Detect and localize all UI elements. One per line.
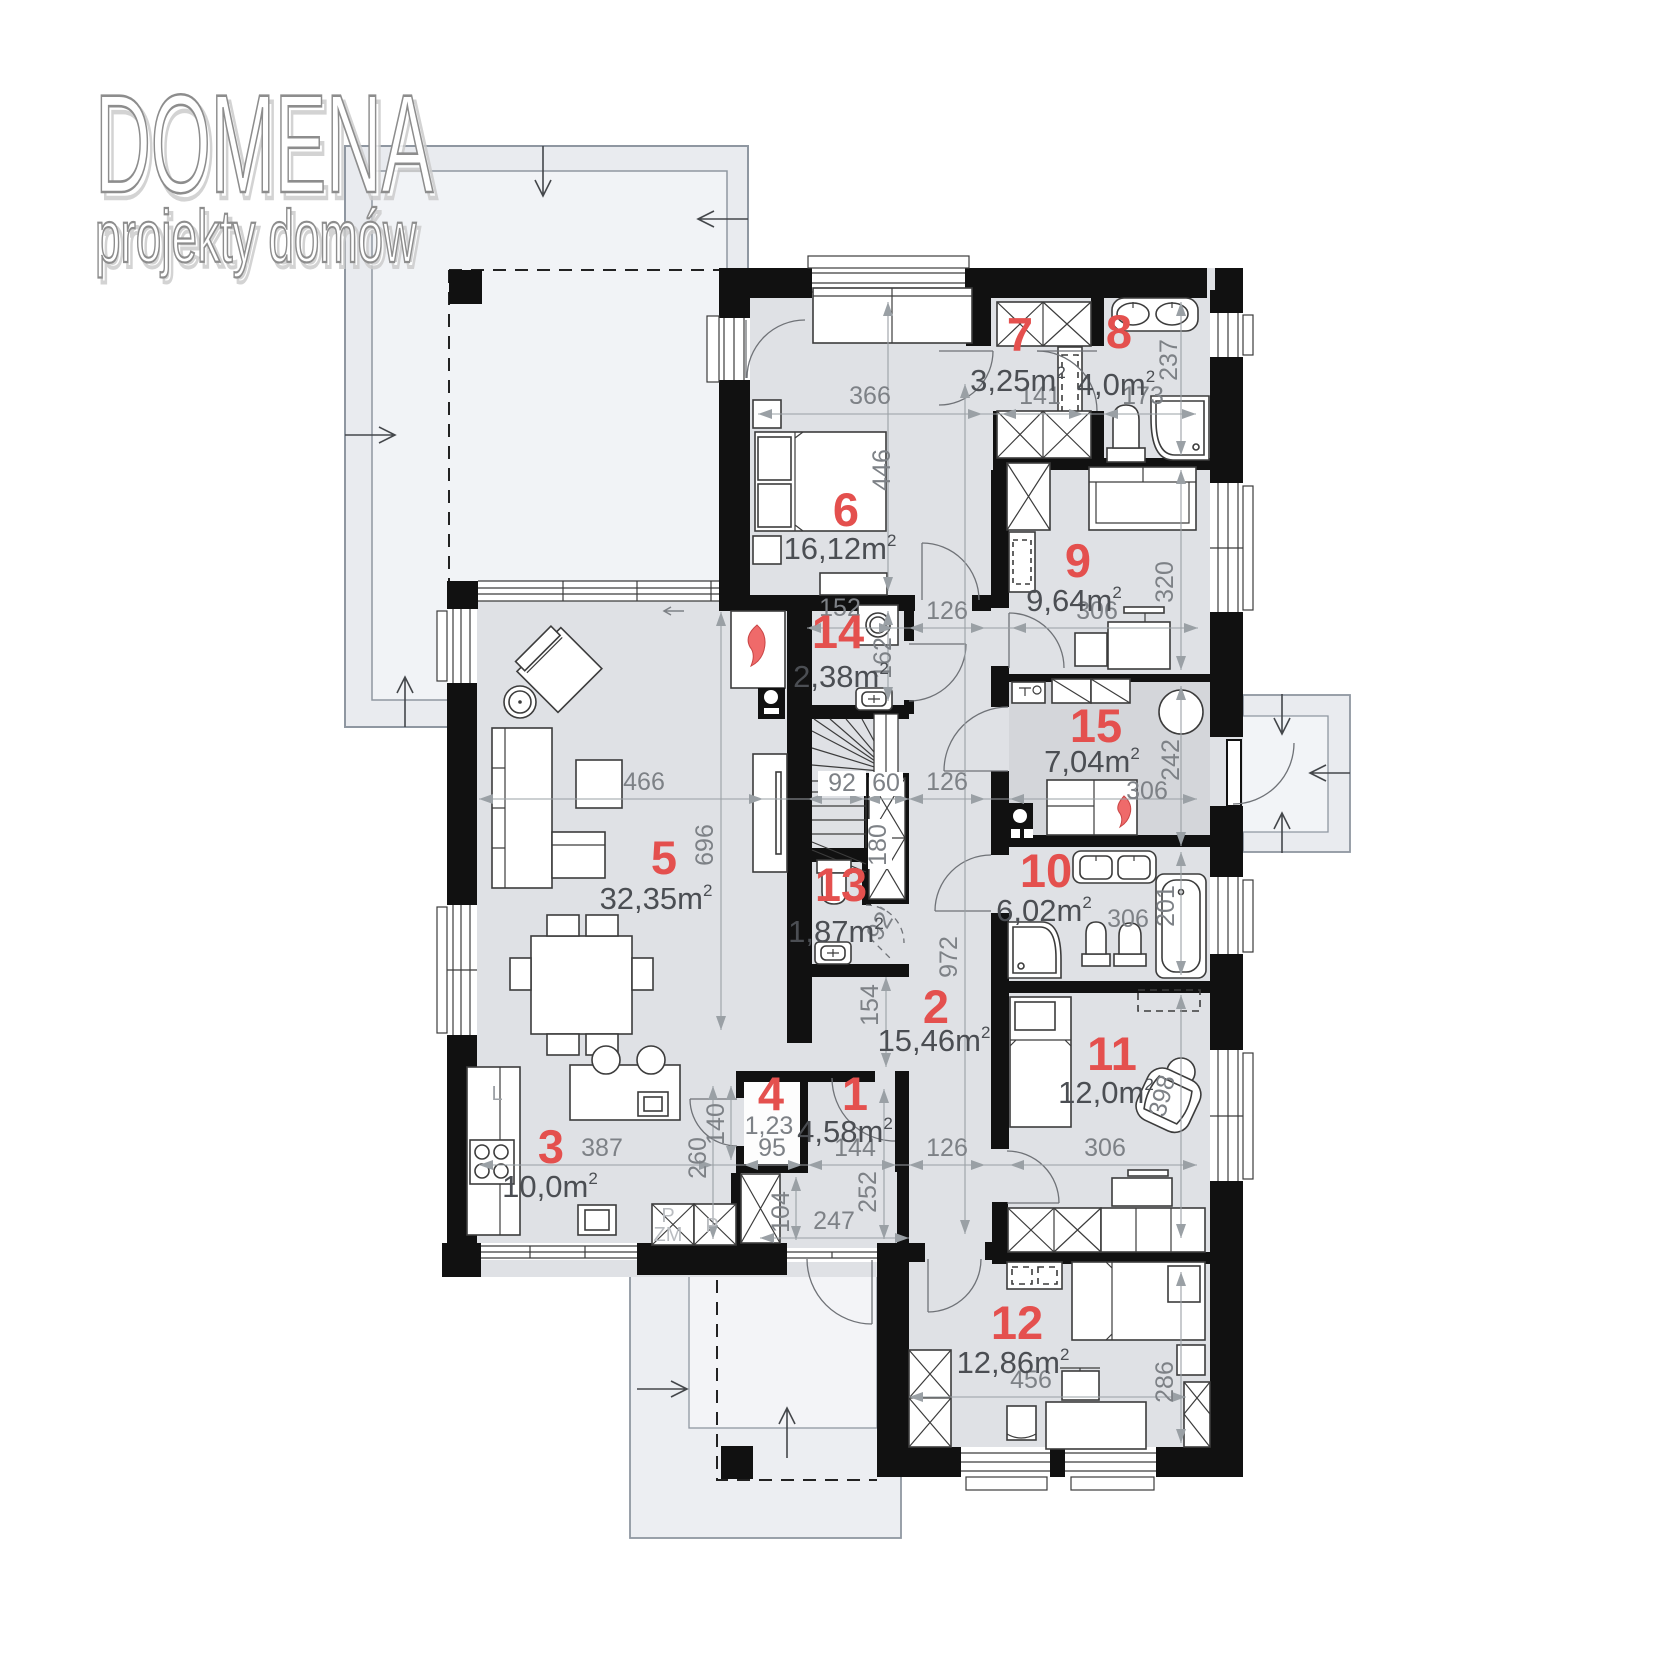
- svg-text:6: 6: [833, 483, 859, 536]
- svg-text:16,12m2: 16,12m2: [784, 531, 897, 566]
- svg-text:10: 10: [1020, 844, 1072, 897]
- svg-text:4: 4: [758, 1067, 784, 1120]
- svg-text:306: 306: [1084, 1134, 1126, 1162]
- svg-text:126: 126: [926, 768, 968, 796]
- svg-text:15,46m2: 15,46m2: [878, 1023, 991, 1058]
- svg-text:11: 11: [1087, 1027, 1137, 1080]
- svg-text:12,0m2: 12,0m2: [1058, 1075, 1154, 1110]
- svg-text:972: 972: [935, 936, 963, 978]
- svg-text:6,02m2: 6,02m2: [996, 893, 1092, 928]
- svg-text:180: 180: [864, 824, 892, 866]
- svg-text:12: 12: [991, 1296, 1043, 1349]
- svg-text:696: 696: [691, 824, 719, 866]
- svg-text:4,0m2: 4,0m2: [1077, 367, 1155, 402]
- svg-text:2,38m2: 2,38m2: [793, 659, 889, 694]
- svg-text:ZM: ZM: [654, 1224, 683, 1246]
- svg-text:466: 466: [623, 768, 665, 796]
- svg-text:P: P: [705, 1215, 718, 1237]
- svg-text:201: 201: [1152, 885, 1180, 927]
- svg-text:L: L: [491, 1083, 502, 1105]
- svg-text:260: 260: [684, 1137, 712, 1179]
- svg-text:3: 3: [538, 1120, 564, 1173]
- svg-text:4,58m2: 4,58m2: [797, 1114, 893, 1149]
- svg-text:387: 387: [581, 1134, 623, 1162]
- svg-text:1,87m2: 1,87m2: [788, 914, 884, 949]
- svg-text:92: 92: [828, 769, 856, 797]
- svg-text:12,86m2: 12,86m2: [957, 1345, 1070, 1380]
- svg-text:237: 237: [1155, 339, 1183, 381]
- svg-text:126: 126: [926, 597, 968, 625]
- svg-text:3,25m2: 3,25m2: [970, 363, 1066, 398]
- svg-text:154: 154: [856, 984, 884, 1026]
- svg-text:1: 1: [842, 1067, 868, 1120]
- svg-text:14: 14: [812, 605, 864, 658]
- svg-text:8: 8: [1106, 305, 1132, 358]
- svg-text:7,04m2: 7,04m2: [1044, 744, 1140, 779]
- svg-text:252: 252: [854, 1171, 882, 1213]
- svg-text:126: 126: [926, 1134, 968, 1162]
- svg-text:9,64m2: 9,64m2: [1026, 583, 1122, 618]
- svg-text:13: 13: [815, 858, 867, 911]
- svg-text:10,0m2: 10,0m2: [502, 1169, 598, 1204]
- svg-text:104: 104: [767, 1191, 795, 1233]
- svg-text:5: 5: [651, 831, 677, 884]
- svg-text:projekty domów: projekty domów: [95, 196, 417, 279]
- svg-text:366: 366: [849, 382, 891, 410]
- svg-text:32,35m2: 32,35m2: [600, 881, 713, 916]
- svg-text:446: 446: [868, 449, 896, 491]
- svg-text:286: 286: [1151, 1361, 1179, 1403]
- svg-text:306: 306: [1107, 905, 1149, 933]
- svg-text:9: 9: [1065, 534, 1091, 587]
- svg-text:7: 7: [1007, 308, 1033, 361]
- svg-text:60: 60: [872, 769, 900, 797]
- svg-text:242: 242: [1157, 739, 1185, 781]
- svg-text:320: 320: [1151, 561, 1179, 603]
- svg-text:247: 247: [813, 1207, 855, 1235]
